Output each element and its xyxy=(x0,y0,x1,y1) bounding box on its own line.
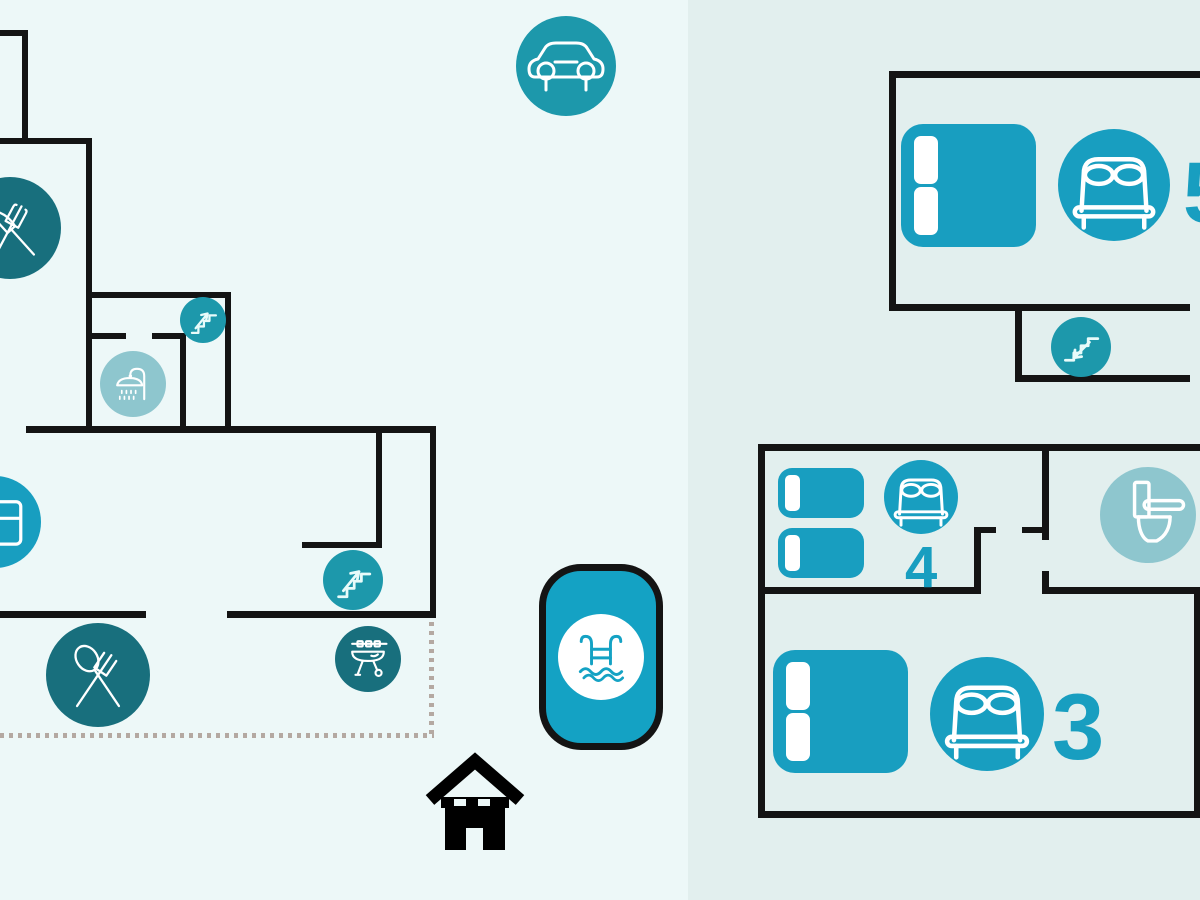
wall xyxy=(889,71,896,311)
wall xyxy=(92,333,126,339)
house-icon xyxy=(420,748,530,863)
wall xyxy=(758,587,980,594)
wall xyxy=(302,542,382,548)
bbq-icon xyxy=(335,626,401,692)
pool-icon xyxy=(558,614,644,700)
wall xyxy=(0,138,92,144)
wall xyxy=(1015,375,1190,382)
wall xyxy=(225,292,231,432)
wall xyxy=(1015,311,1022,382)
wall xyxy=(1042,448,1049,540)
pillow xyxy=(785,535,800,571)
wall xyxy=(430,426,436,618)
ground-floor-panel xyxy=(0,0,688,900)
pillow xyxy=(786,662,810,710)
stairs-down-icon xyxy=(1051,317,1111,377)
wall xyxy=(758,444,765,818)
wall xyxy=(86,138,92,432)
shower-icon xyxy=(100,351,166,417)
wall xyxy=(1043,587,1200,594)
pillow xyxy=(914,187,938,235)
pool-area xyxy=(539,564,663,750)
wall xyxy=(889,304,1190,311)
wall xyxy=(974,527,981,594)
wall xyxy=(1042,571,1049,594)
bedroom-capacity: 3 xyxy=(1052,680,1104,774)
terrace-dotted-line xyxy=(429,622,434,734)
pillow xyxy=(786,713,810,761)
wall xyxy=(758,811,1200,818)
wall xyxy=(889,71,1200,78)
double-bed-icon xyxy=(884,460,958,534)
toilet-icon xyxy=(1100,467,1196,563)
car-icon xyxy=(516,16,616,116)
wall xyxy=(376,433,382,547)
stairs-up-icon xyxy=(323,550,383,610)
wall xyxy=(227,611,436,618)
terrace-dotted-line xyxy=(0,733,434,738)
double-bed-icon xyxy=(1058,129,1170,241)
double-bed-icon xyxy=(930,657,1044,771)
bedroom-capacity: 5 xyxy=(1183,150,1200,236)
floor-plan-canvas: 5 4 xyxy=(0,0,1200,900)
pillow xyxy=(785,475,800,511)
wall xyxy=(22,30,28,144)
wall xyxy=(758,444,1200,451)
wall xyxy=(1194,587,1200,818)
pillow xyxy=(914,136,938,184)
bedroom-capacity: 4 xyxy=(905,539,937,597)
dining-icon xyxy=(46,623,150,727)
wall xyxy=(0,611,146,618)
stairs-up-icon xyxy=(180,297,226,343)
wall xyxy=(974,527,996,533)
wall xyxy=(26,426,436,433)
wall xyxy=(180,333,186,432)
